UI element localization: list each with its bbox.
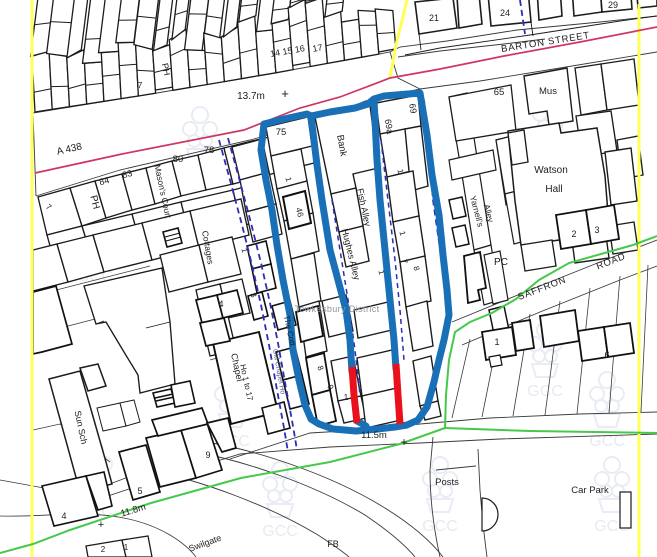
svg-text:75: 75 <box>276 127 287 138</box>
svg-text:1: 1 <box>494 337 499 347</box>
svg-text:17: 17 <box>312 42 324 54</box>
svg-text:13.7m: 13.7m <box>237 91 265 102</box>
svg-text:11.5m: 11.5m <box>361 430 387 441</box>
svg-text:Tewkesbury District: Tewkesbury District <box>294 304 379 314</box>
svg-text:1: 1 <box>344 393 349 402</box>
svg-text:21: 21 <box>429 13 439 23</box>
svg-text:FB: FB <box>327 539 339 549</box>
svg-text:Watson: Watson <box>534 165 568 176</box>
svg-text:6: 6 <box>604 350 609 360</box>
svg-text:2: 2 <box>571 229 576 239</box>
svg-text:69: 69 <box>407 103 419 115</box>
svg-text:GCC: GCC <box>422 518 458 535</box>
svg-text:29: 29 <box>608 0 618 10</box>
svg-text:+: + <box>400 435 407 449</box>
svg-text:65: 65 <box>494 87 505 98</box>
svg-text:3: 3 <box>594 225 599 235</box>
svg-text:80: 80 <box>173 154 184 165</box>
svg-text:GCC: GCC <box>262 523 298 540</box>
svg-text:1: 1 <box>124 543 129 552</box>
svg-text:4: 4 <box>61 511 66 521</box>
svg-text:4: 4 <box>218 299 223 309</box>
svg-text:9: 9 <box>205 450 210 460</box>
svg-text:PC: PC <box>494 257 508 268</box>
svg-text:7: 7 <box>138 80 143 90</box>
svg-text:+: + <box>281 86 289 101</box>
svg-text:GCC: GCC <box>527 383 563 400</box>
svg-text:Posts: Posts <box>435 477 459 488</box>
svg-text:Hall: Hall <box>545 184 562 195</box>
svg-text:Mus: Mus <box>539 86 557 97</box>
svg-text:5: 5 <box>137 486 142 496</box>
svg-text:Car Park: Car Park <box>571 485 609 496</box>
svg-text:78: 78 <box>204 145 215 156</box>
svg-text:+: + <box>98 519 104 531</box>
svg-text:2: 2 <box>101 545 106 554</box>
svg-text:24: 24 <box>500 8 510 18</box>
